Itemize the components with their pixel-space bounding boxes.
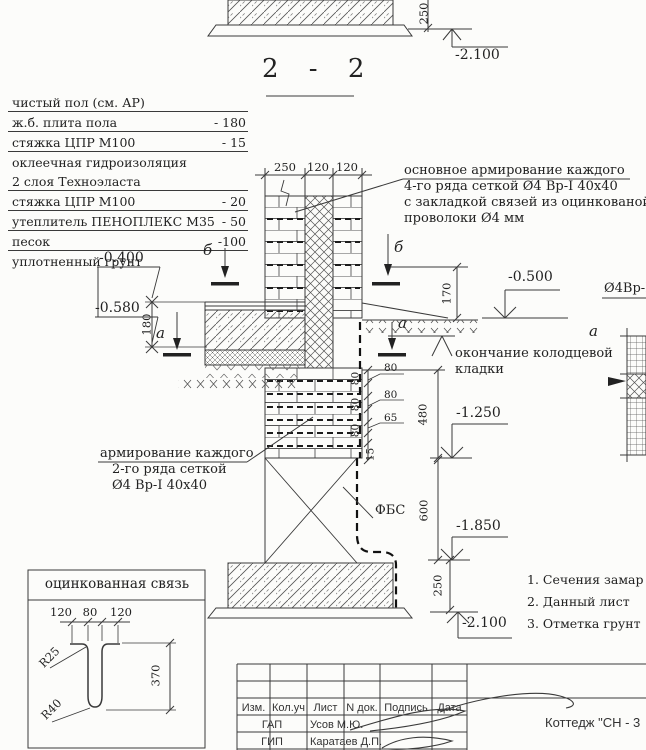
tb-name-usov: Усов М.Ю. [310, 718, 363, 733]
cut-letter-b-left: б [203, 243, 212, 258]
note-3: 3. Отметка грунт [527, 616, 641, 631]
tb-project-name: Коттедж "СН - 3 [545, 715, 640, 730]
dim-250-footing-top: 250 [417, 0, 432, 34]
dim-80-flag-b: 80 [384, 388, 397, 403]
dim-600: 600 [417, 491, 432, 531]
drawing-sheet: 2 - 2 чистый пол (см. АР) ж.б. плита пол… [0, 0, 646, 750]
note-2: 2. Данный лист [527, 594, 630, 609]
dim-250-footing-bottom: 250 [431, 566, 446, 606]
tb-header-izm: Изм. [238, 701, 269, 716]
right-partial-section [608, 328, 646, 462]
detail-dim-120a: 120 [44, 605, 78, 620]
tb-header-data: Дата [433, 701, 466, 716]
tb-header-podpis: Подпись [381, 701, 431, 716]
fbs-label: ФБС [375, 503, 405, 518]
dim-120-core: 120 [303, 160, 333, 175]
tb-header-koluch: Кол.уч [271, 701, 306, 716]
level-0400: -0.400 [99, 251, 144, 266]
dim-170: 170 [440, 274, 455, 314]
dim-80-c: 80 [349, 416, 364, 446]
tb-role-gap: ГАП [237, 718, 307, 733]
note-1: 1. Сечения замар [527, 572, 644, 587]
annotation-well-end: окончание колодцевой кладки [455, 346, 613, 378]
floor-layer-row: чистый пол (см. АР) [8, 92, 248, 112]
floor-layer-row: стяжка ЦПР М100- 15 [8, 132, 248, 152]
level-0580: -0.580 [95, 301, 140, 316]
tb-name-karataev: Каратаев Д.П. [310, 735, 382, 750]
level-0500: -0.500 [508, 270, 553, 285]
annotation-row2-reinforcement: армирование каждого 2-го ряда сеткой Ø4 … [100, 446, 254, 494]
floor-layer-row: утеплитель ПЕНОПЛЕКС М35- 50 [8, 211, 248, 231]
dim-180: 180 [140, 305, 155, 345]
top-footing [208, 0, 508, 47]
bottom-footing [208, 563, 412, 618]
floor-layer-row: 2 слоя Техноэласта [8, 171, 248, 191]
floor-layer-row: ж.б. плита пола- 180 [8, 112, 248, 132]
dim-65-flag: 65 [384, 411, 397, 426]
dim-120-leaf: 120 [332, 160, 362, 175]
tb-role-gip: ГИП [237, 735, 307, 750]
detail-dim-80: 80 [78, 605, 102, 620]
floor-layer-row: оклеечная гидроизоляция [8, 152, 248, 171]
detail-dim-370: 370 [149, 656, 164, 696]
cut-letter-a-right: а [398, 316, 407, 331]
detail-dim-120b: 120 [104, 605, 138, 620]
detail-title: оцинкованная связь [32, 577, 202, 592]
dim-250-top: 250 [265, 160, 305, 175]
level-top: -2.100 [455, 48, 500, 63]
cut-letter-b-right: б [394, 240, 403, 255]
level-1850: -1.850 [456, 519, 501, 534]
tb-header-list: Лист [308, 701, 343, 716]
level-1250: -1.250 [456, 406, 501, 421]
dim-15: 15 [364, 440, 379, 470]
section-title: 2 - 2 [262, 62, 358, 77]
mesh-label: Ø4Вр-I [604, 281, 646, 296]
cut-letter-a-left: а [156, 326, 165, 341]
dim-480: 480 [416, 395, 431, 435]
floor-layer-row: стяжка ЦПР М100- 20 [8, 191, 248, 211]
cut-letter-a-edge: а [589, 324, 598, 339]
level-bottom: -2.100 [462, 616, 507, 631]
dim-80-flag-a: 80 [384, 361, 397, 376]
annotation-main-reinforcement: основное армирование каждого 4-го ряда с… [404, 163, 646, 227]
tb-header-ndok: N док. [345, 701, 379, 716]
